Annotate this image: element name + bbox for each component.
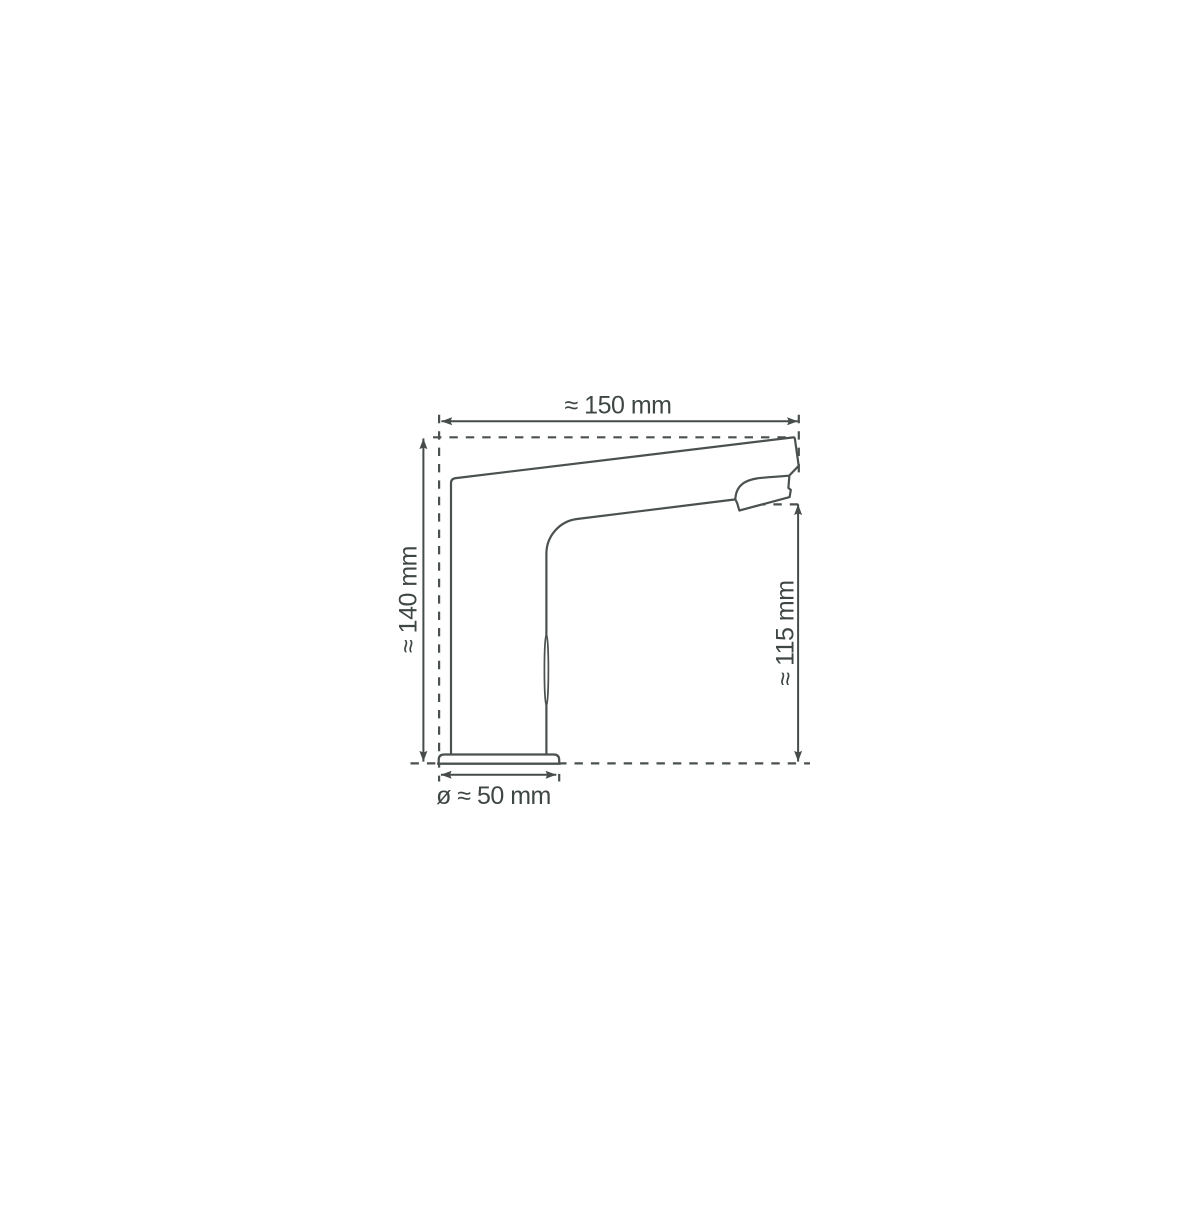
svg-text:≈ 140 mm: ≈ 140 mm <box>395 546 423 653</box>
svg-text:≈ 115 mm: ≈ 115 mm <box>771 580 799 685</box>
svg-text:≈ 150 mm: ≈ 150 mm <box>565 392 672 420</box>
svg-text:ø ≈ 50 mm: ø ≈ 50 mm <box>436 782 551 810</box>
